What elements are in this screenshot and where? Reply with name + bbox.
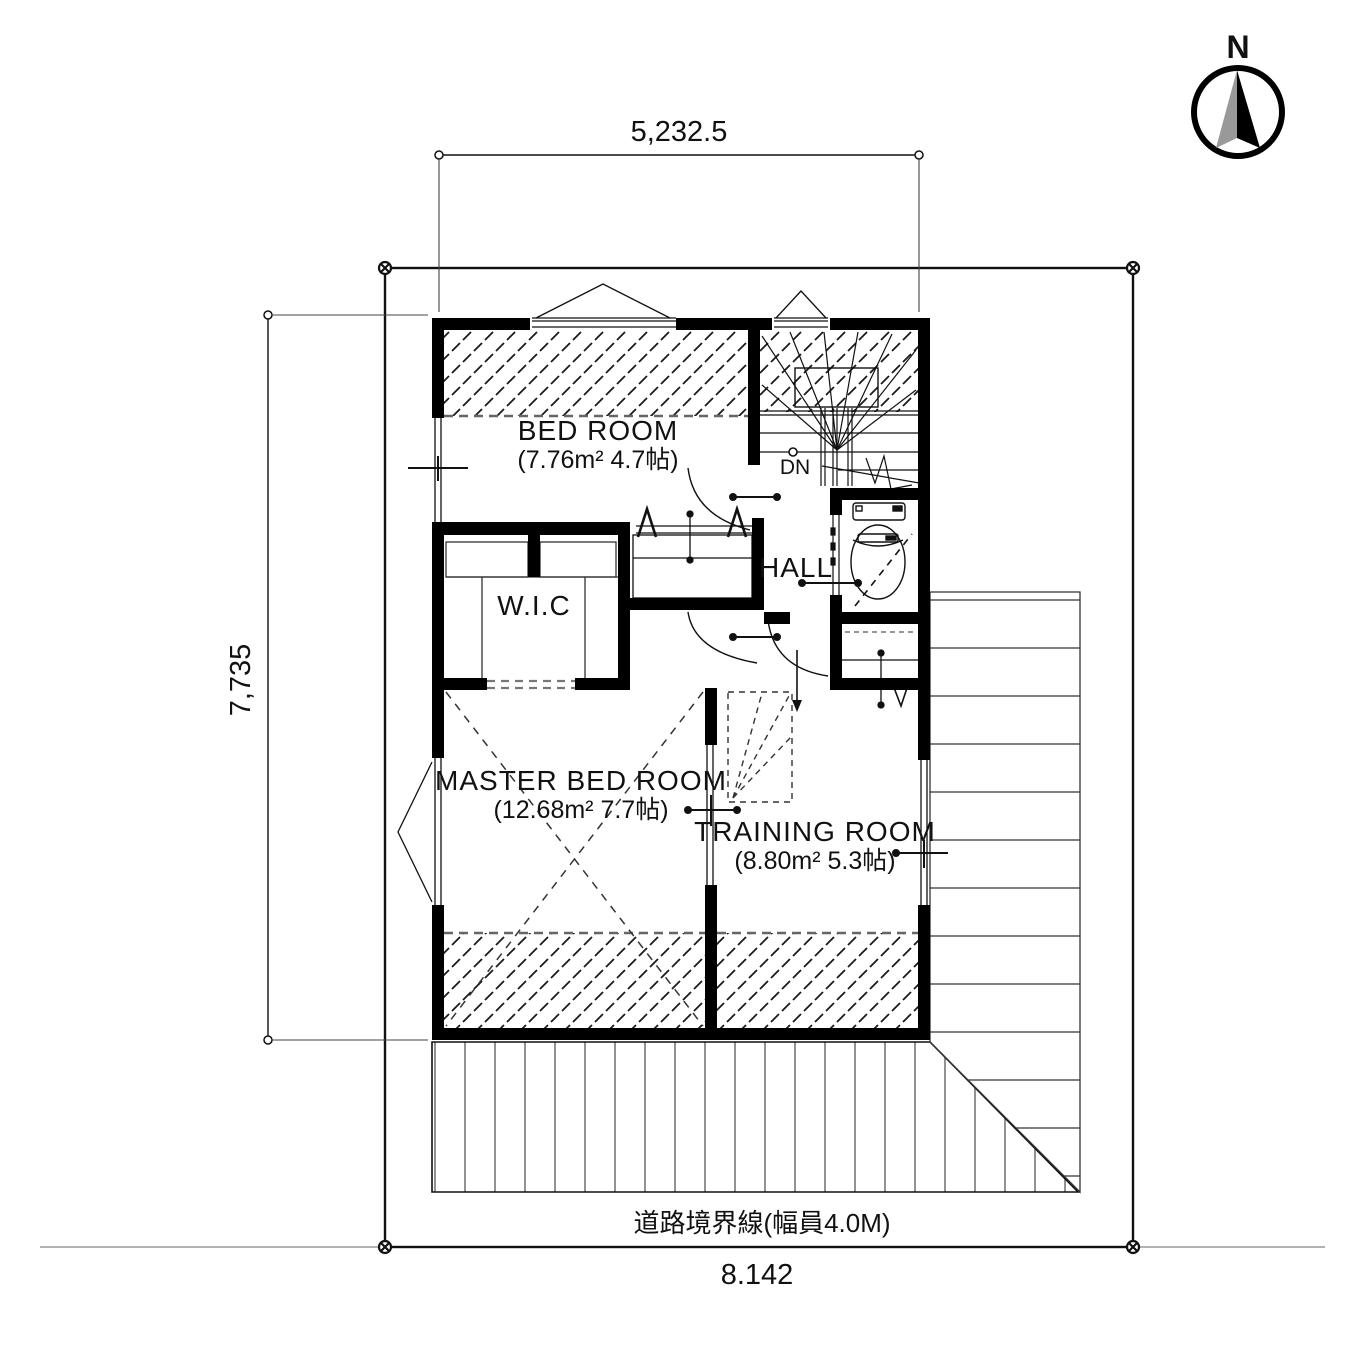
bedroom-label: BED ROOM <box>518 415 678 446</box>
hall-closet <box>842 632 918 708</box>
master-bedroom-hatch <box>444 933 705 1028</box>
master-bedroom-area: (12.68m² 7.7帖) <box>493 796 668 824</box>
room-labels: BED ROOM (7.76m² 4.7帖) W.I.C HALL MASTER… <box>435 415 936 875</box>
compass-north-icon: N <box>1194 29 1282 156</box>
floor-plan-page: 5,232.5 7,735 道路境界線(幅員4.0M) 8.142 BED RO… <box>0 0 1362 1362</box>
road-boundary-label: 道路境界線(幅員4.0M) <box>633 1208 890 1238</box>
stair-start-marker <box>789 448 797 456</box>
toilet-sliding-door <box>855 534 912 606</box>
hall-label: HALL <box>759 552 833 583</box>
floor-plan-canvas: 5,232.5 7,735 道路境界線(幅員4.0M) 8.142 BED RO… <box>0 0 1362 1362</box>
wic-label: W.I.C <box>497 590 570 621</box>
stair-hatch <box>760 330 918 412</box>
dimension-top: 5,232.5 <box>435 116 923 312</box>
training-room-area: (8.80m² 5.3帖) <box>734 847 895 875</box>
master-bedroom-label: MASTER BED ROOM <box>435 765 727 796</box>
compass-n-label: N <box>1226 29 1249 65</box>
training-room-label: TRAINING ROOM <box>694 816 936 847</box>
hall-cabinet <box>633 509 752 598</box>
bedroom-area: (7.76m² 4.7帖) <box>517 446 678 474</box>
stair-top-window <box>774 291 828 327</box>
dimension-bottom: 道路境界線(幅員4.0M) 8.142 <box>633 1208 890 1291</box>
training-room-hatch <box>717 933 918 1028</box>
training-room-door-arc <box>768 620 828 676</box>
training-room-dashed-figure <box>728 692 792 802</box>
dimension-bottom-value: 8.142 <box>721 1259 794 1291</box>
stairs-dn-label: DN <box>780 456 810 479</box>
training-room-arrow <box>792 650 802 712</box>
opening-ticks <box>408 456 948 868</box>
toilet-room <box>831 503 912 606</box>
stair-rails <box>821 408 852 486</box>
dimension-left: 7,735 <box>225 311 428 1044</box>
bedroom-hatch <box>444 330 748 416</box>
dimension-top-value: 5,232.5 <box>631 116 728 148</box>
dimension-left-value: 7,735 <box>225 644 257 717</box>
bedroom-top-window <box>532 284 676 327</box>
